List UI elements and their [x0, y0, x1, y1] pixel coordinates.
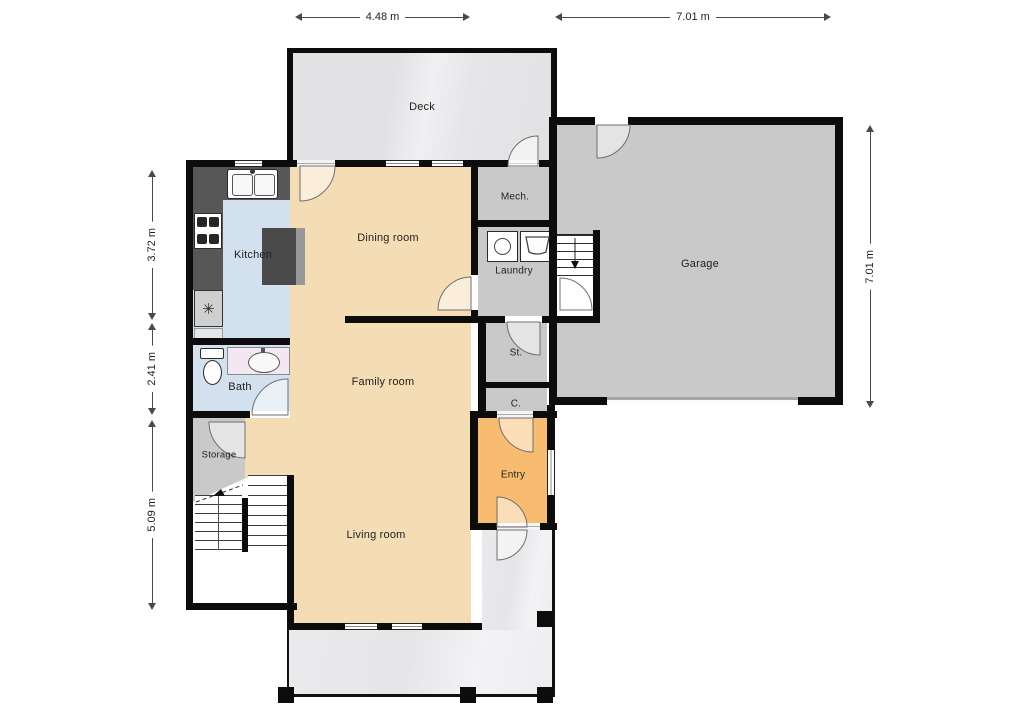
- porch-post: [537, 687, 553, 703]
- dimension-label: 5.09 m: [146, 492, 158, 538]
- dimension-top-left: 4.48 m: [295, 11, 470, 23]
- wall-segment: [186, 160, 235, 167]
- wall-segment: [186, 160, 193, 610]
- dimension-left-middle: 2.41 m: [146, 323, 158, 415]
- laundry-label: Laundry: [495, 266, 533, 277]
- wall-segment: [547, 495, 555, 530]
- wall-segment: [287, 48, 293, 160]
- wall-segment: [287, 475, 294, 630]
- wall-segment: [593, 230, 600, 323]
- porch-post: [537, 611, 553, 627]
- window: [392, 623, 422, 630]
- wall-segment: [422, 623, 482, 630]
- deck-label: Deck: [409, 101, 435, 113]
- family-room-label: Family room: [352, 376, 415, 388]
- wall-segment: [377, 623, 392, 630]
- dimension-right: 7.01 m: [864, 125, 876, 408]
- stairs-left-divider: [218, 495, 219, 550]
- fridge-icon: ✳: [194, 290, 223, 327]
- c-label: C.: [511, 399, 521, 410]
- stairs-landing: [195, 552, 287, 603]
- kitchen-island-ledge: [296, 228, 305, 285]
- arrow-down-icon: [148, 313, 156, 320]
- kitchen-sink: [227, 169, 278, 199]
- dimension-label: 2.41 m: [146, 346, 158, 392]
- stairs-center-wall: [242, 498, 248, 552]
- porch-bottom: [289, 630, 555, 696]
- wall-segment: [463, 160, 508, 167]
- toilet-bowl-icon: [203, 360, 222, 385]
- dimension-label: 3.72 m: [146, 222, 158, 268]
- wall-segment: [628, 117, 843, 125]
- dimension-left-upper: 3.72 m: [146, 170, 158, 320]
- window: [345, 623, 377, 630]
- arrow-left-icon: [555, 13, 562, 21]
- arrow-up-icon: [148, 323, 156, 330]
- st-label: St.: [510, 348, 523, 359]
- door-opening: [297, 160, 335, 167]
- wall-segment: [419, 160, 432, 167]
- window: [235, 160, 262, 167]
- arrow-up-icon: [148, 420, 156, 427]
- mech-label: Mech.: [501, 192, 529, 203]
- garage-stairs: [556, 234, 593, 277]
- door-opening: [508, 160, 539, 167]
- dimension-label: 7.01 m: [670, 11, 716, 23]
- faucet-icon: [250, 169, 255, 174]
- garage-label: Garage: [681, 258, 719, 270]
- stairs-right-flight: [248, 475, 287, 552]
- wall-segment: [551, 48, 557, 121]
- arrow-up-icon: [866, 125, 874, 132]
- dining-room-label: Dining room: [357, 232, 419, 244]
- door-opening: [497, 523, 540, 530]
- bath-faucet-icon: [261, 348, 265, 353]
- arrow-right-icon: [463, 13, 470, 21]
- toilet-tank-icon: [200, 348, 224, 359]
- wall-segment: [549, 397, 607, 405]
- bath-label: Bath: [228, 381, 251, 393]
- wall-segment: [193, 411, 250, 418]
- wall-segment: [478, 322, 486, 418]
- window: [386, 160, 419, 167]
- entry-label: Entry: [501, 470, 525, 481]
- wall-segment: [287, 623, 345, 630]
- window: [432, 160, 463, 167]
- arrow-left-icon: [295, 13, 302, 21]
- arrow-down-icon: [866, 401, 874, 408]
- dimension-label: 4.48 m: [360, 11, 406, 23]
- washer-icon: [487, 231, 518, 262]
- living-room-label: Living room: [346, 529, 405, 541]
- wall-segment: [287, 48, 557, 53]
- fridge-symbol: ✳: [202, 300, 215, 318]
- wall-segment: [470, 411, 478, 530]
- wall-segment: [549, 117, 595, 125]
- door-opening: [497, 411, 533, 418]
- arrow-right-icon: [824, 13, 831, 21]
- arrow-down-icon: [148, 408, 156, 415]
- wall-segment: [798, 397, 843, 405]
- kitchen-label: Kitchen: [234, 249, 272, 261]
- wall-segment: [549, 316, 600, 323]
- hall-floor: [245, 418, 290, 478]
- wall-segment: [186, 603, 297, 610]
- wall-segment: [262, 160, 297, 167]
- porch-edge: [287, 694, 555, 697]
- wall-segment: [835, 117, 843, 405]
- dimension-left-lower: 5.09 m: [146, 420, 158, 610]
- wall-segment: [549, 117, 557, 405]
- dimension-top-right: 7.01 m: [555, 11, 831, 23]
- arrow-down-icon: [148, 603, 156, 610]
- bath-sink-icon: [248, 352, 280, 373]
- bath-vanity: [227, 347, 290, 375]
- window: [547, 450, 555, 495]
- wall-segment: [471, 220, 557, 227]
- porch-post: [460, 687, 476, 703]
- kitchen-stove: [194, 213, 222, 249]
- floor-plan: ✳: [0, 0, 1023, 723]
- wall-segment: [335, 160, 386, 167]
- wall-segment: [193, 338, 290, 345]
- garage-stairs-landing: [556, 276, 593, 316]
- wall-segment: [478, 382, 557, 388]
- wall-segment: [533, 411, 557, 418]
- storage-label: Storage: [202, 450, 237, 461]
- garage-door-opening: [607, 397, 798, 405]
- arrow-up-icon: [148, 170, 156, 177]
- dimension-label: 7.01 m: [864, 244, 876, 290]
- porch-post: [278, 687, 294, 703]
